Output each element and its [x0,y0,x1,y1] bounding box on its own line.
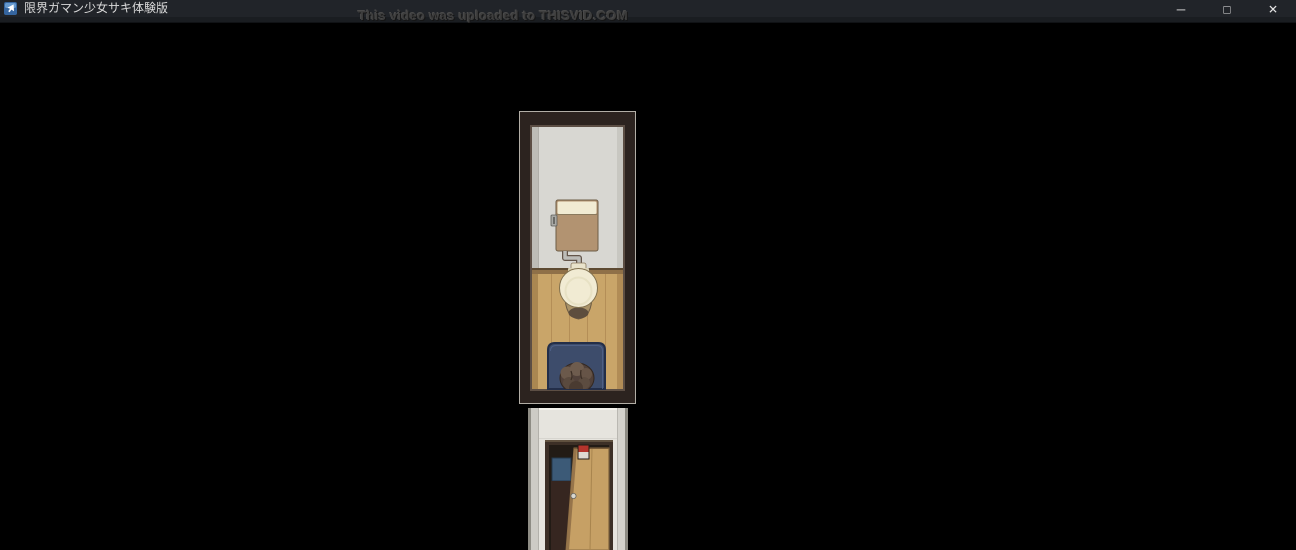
video-watermark: This video was uploaded to THISVID.COM [348,8,638,23]
flush-handle-slot [553,217,555,224]
window-controls: ─ □ ✕ [1158,0,1296,17]
wall-poster [552,458,571,481]
wall-shade-left [532,127,538,268]
close-button[interactable]: ✕ [1250,0,1296,17]
window-title: 限界ガマン少女サキ体験版 [24,0,168,17]
lower-wall-panel-line [539,438,617,439]
title-bar[interactable]: 限界ガマン少女サキ体験版 ─ □ ✕ [0,0,1296,17]
door-frame-top-highlight [545,440,613,442]
close-icon: ✕ [1268,3,1278,15]
maximize-icon: □ [1223,3,1230,15]
toilet-door-view [528,408,628,550]
toilet-tank-lid [558,202,597,215]
lower-wall-top-highlight [528,408,628,410]
minimize-button[interactable]: ─ [1158,0,1204,17]
toilet-room-view [519,111,636,404]
maximize-button[interactable]: □ [1204,0,1250,17]
lower-wall-seam-right [617,408,618,550]
door-knob [571,493,576,498]
wall-seam-left [538,127,539,268]
lower-wall-shade-left [531,408,538,550]
lower-wall-shade-right [618,408,625,550]
app-icon[interactable] [4,2,17,15]
floor-shade-left [532,274,538,389]
game-scene [0,23,1296,550]
toilet-base-shadow [569,308,589,319]
warning-sign [578,445,589,459]
lower-wall-edge-right [625,408,628,550]
floor-shade-right [617,274,623,389]
lower-wall-seam-left [538,408,539,550]
minimize-icon: ─ [1177,3,1186,15]
wall-shade-right [617,127,623,268]
lower-wall-edge-left [528,408,531,550]
